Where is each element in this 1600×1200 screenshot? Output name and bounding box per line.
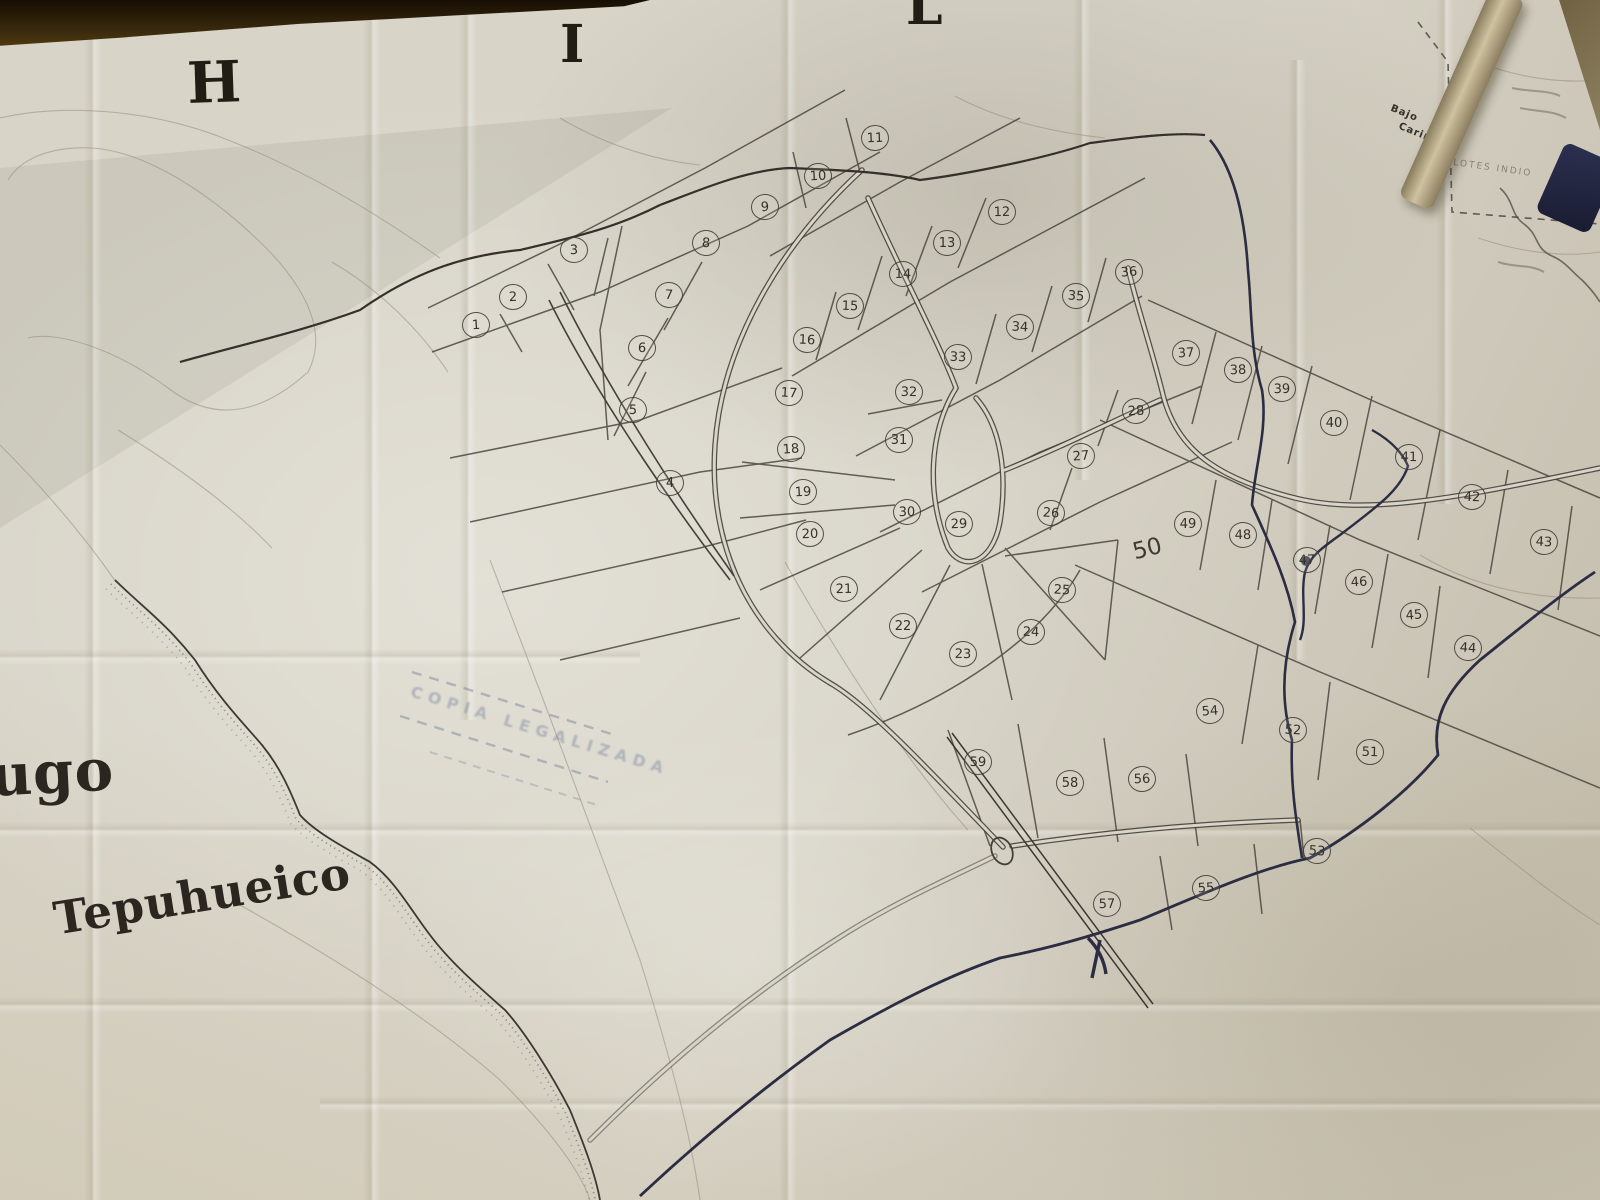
map-line-art: [0, 0, 1600, 1200]
river-crossing-mark: [1088, 938, 1106, 978]
pen-blob: [1301, 556, 1311, 566]
rivers: [180, 134, 1595, 1196]
roads: [549, 170, 1600, 1140]
tapering-road: [549, 292, 734, 580]
contour-lines: [0, 58, 1600, 1200]
parcel-boundaries: [428, 90, 1600, 930]
map-photo: 1234567891011121314151617181920212223242…: [0, 0, 1600, 1200]
stamp-dashed-rules: [400, 672, 618, 806]
road-junction-loop: [987, 834, 1017, 868]
